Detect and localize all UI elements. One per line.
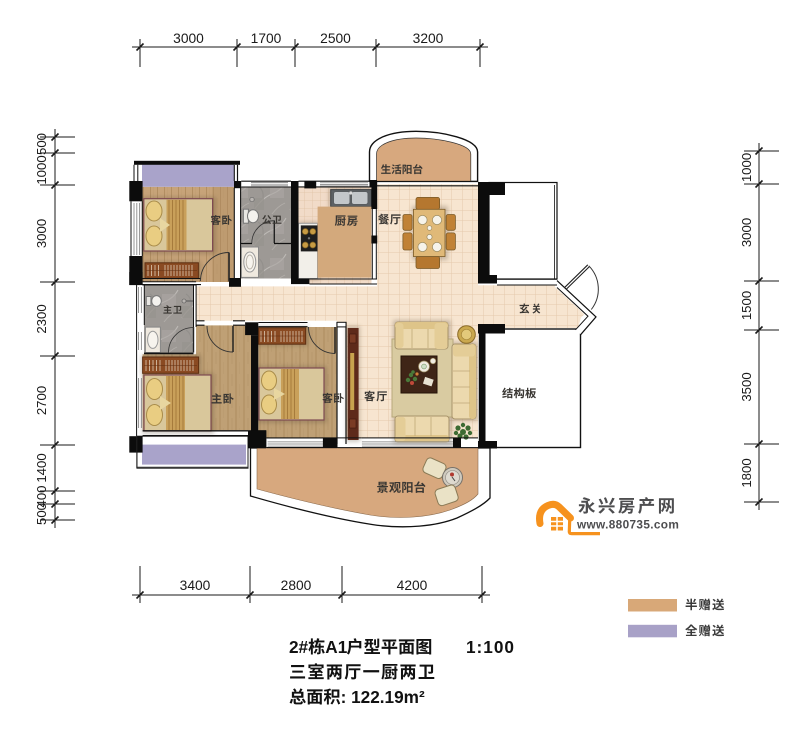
svg-text:3000: 3000 bbox=[739, 218, 754, 247]
svg-text:3200: 3200 bbox=[413, 31, 444, 46]
svg-text:500: 500 bbox=[34, 503, 49, 525]
svg-text:1500: 1500 bbox=[739, 291, 754, 320]
svg-text:2800: 2800 bbox=[281, 578, 312, 593]
svg-text:: 122.19m²: : 122.19m² bbox=[341, 687, 425, 707]
svg-text:4200: 4200 bbox=[397, 578, 428, 593]
svg-text:1000: 1000 bbox=[34, 155, 49, 184]
svg-text:2300: 2300 bbox=[34, 304, 49, 333]
svg-text:3000: 3000 bbox=[173, 31, 204, 46]
svg-text:500: 500 bbox=[34, 133, 49, 155]
svg-text:3400: 3400 bbox=[180, 578, 211, 593]
svg-text:2500: 2500 bbox=[320, 31, 351, 46]
svg-text:1800: 1800 bbox=[739, 458, 754, 487]
svg-text:A1: A1 bbox=[325, 637, 347, 657]
svg-text:2#: 2# bbox=[289, 637, 309, 657]
svg-text:1400: 1400 bbox=[34, 453, 49, 482]
svg-text:1700: 1700 bbox=[251, 31, 282, 46]
svg-text:3500: 3500 bbox=[739, 372, 754, 401]
svg-text:2700: 2700 bbox=[34, 386, 49, 415]
svg-text:3000: 3000 bbox=[34, 219, 49, 248]
svg-text:1000: 1000 bbox=[739, 153, 754, 182]
svg-text:1:100: 1:100 bbox=[466, 637, 515, 657]
svg-text:www.880735.com: www.880735.com bbox=[576, 518, 679, 532]
